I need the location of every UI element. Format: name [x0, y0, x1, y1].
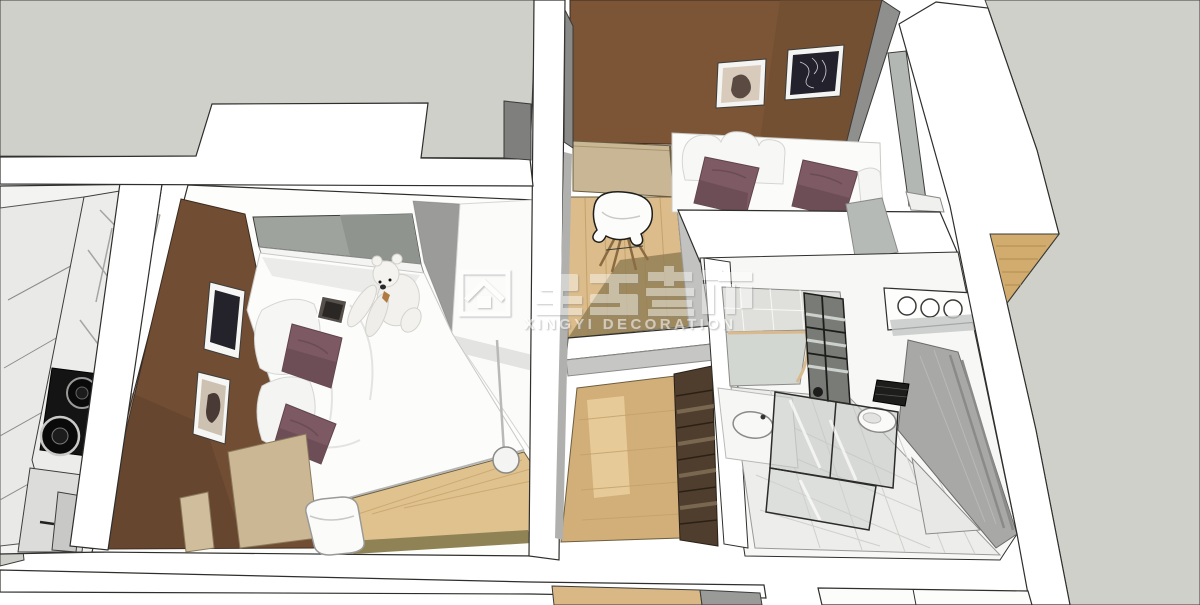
svg-text:XINGYI DECORATION: XINGYI DECORATION [524, 316, 737, 333]
